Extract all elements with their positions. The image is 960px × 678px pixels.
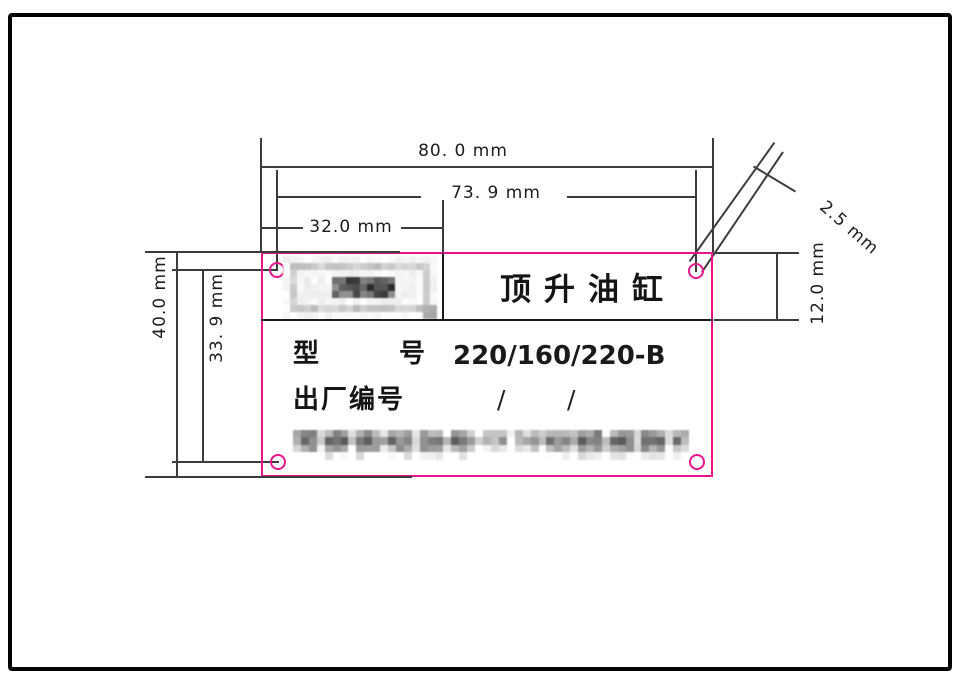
ext-line-title-row-top	[714, 252, 799, 254]
ext-line-title-row-bottom	[714, 319, 799, 321]
dim-line-hole-pitch-width-left	[278, 196, 421, 198]
model-label-char-2: 号	[399, 340, 425, 368]
ext-line-plate-top	[145, 251, 400, 253]
logo-blurred-mosaic	[283, 256, 437, 319]
dim-text-hole-pitch-width: 73. 9 mm	[416, 183, 576, 203]
serial-slash-2: /	[567, 385, 575, 414]
nameplate-row-divider	[261, 319, 713, 321]
dim-line-overall-height	[176, 251, 178, 477]
drawing-canvas: 80. 0 mm 73. 9 mm 32.0 mm 40.0 mm 33. 9 …	[0, 0, 960, 678]
serial-label: 出厂编号	[293, 386, 405, 414]
mounting-hole-bottom-right	[689, 454, 705, 470]
dim-text-hole-pitch-height: 33. 9 mm	[207, 273, 227, 363]
model-value: 220/160/220-B	[453, 341, 665, 371]
serial-slash-1: /	[497, 385, 505, 414]
model-label: 型 号	[293, 340, 425, 368]
ext-line-left-edge	[260, 138, 262, 253]
dim-text-logo-width: 32.0 mm	[301, 217, 401, 237]
dim-text-overall-height: 40.0 mm	[150, 255, 170, 338]
dim-line-title-row-height	[776, 252, 778, 320]
ext-line-plate-bottom	[145, 476, 412, 478]
nameplate-column-divider	[442, 253, 444, 320]
ext-line-right-edge	[712, 138, 714, 253]
dim-text-overall-width: 80. 0 mm	[383, 141, 543, 161]
product-title: 顶升油缸	[446, 254, 712, 318]
mounting-hole-bottom-left	[270, 454, 286, 470]
dim-text-title-row-height: 12.0 mm	[808, 241, 828, 324]
dim-line-logo-width-right	[401, 227, 443, 229]
dim-line-logo-width-left	[262, 227, 303, 229]
dim-line-hole-pitch-height	[202, 269, 204, 462]
ext-line-logo-divider	[442, 200, 444, 254]
manufacturer-blurred-mosaic	[293, 430, 689, 459]
dim-line-hole-pitch-width-right	[567, 196, 697, 198]
dim-line-overall-width	[261, 166, 713, 168]
model-label-char-1: 型	[293, 340, 319, 368]
